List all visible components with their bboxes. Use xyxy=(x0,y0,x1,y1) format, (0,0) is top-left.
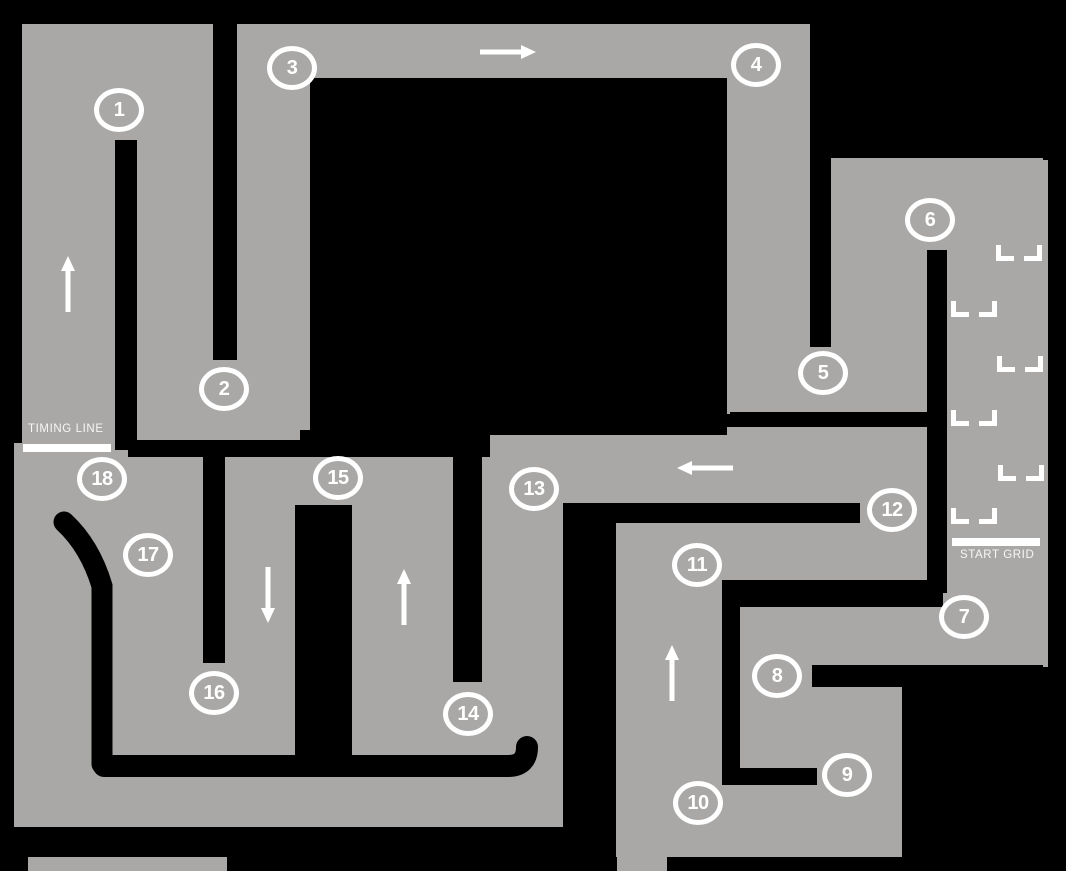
corner-marker-18: 18 xyxy=(77,457,127,501)
track-map: TIMING LINE START GRID 12345678910111213… xyxy=(0,0,1066,871)
grid-slot-3 xyxy=(997,356,1043,372)
corner-marker-1: 1 xyxy=(94,88,144,132)
corner-marker-13: 13 xyxy=(509,467,559,511)
wall-turn4-right xyxy=(810,55,831,347)
wall-turn15 xyxy=(295,505,352,760)
corner-marker-12: 12 xyxy=(867,488,917,532)
grid-slot-2 xyxy=(951,301,997,317)
corner-marker-9: 9 xyxy=(822,753,872,797)
corner-marker-7: 7 xyxy=(939,595,989,639)
wall-turn8-vertical xyxy=(722,587,740,783)
wall-turn1 xyxy=(115,140,137,450)
corner-marker-15: 15 xyxy=(313,456,363,500)
wall-turn7-south xyxy=(812,665,1043,687)
track-surface-top-left-block xyxy=(22,24,310,444)
track-surface-bottom-sliver-left xyxy=(28,857,227,871)
wall-turn12-north xyxy=(615,503,860,523)
start-grid-bar xyxy=(952,538,1040,546)
corner-marker-2: 2 xyxy=(199,367,249,411)
infield-block-central xyxy=(310,78,727,435)
wall-turn9 xyxy=(722,768,817,785)
corner-marker-3: 3 xyxy=(267,46,317,90)
corner-marker-17: 17 xyxy=(123,533,173,577)
wall-turn14 xyxy=(453,430,482,682)
direction-arrow-right xyxy=(479,44,537,60)
corner-marker-10: 10 xyxy=(673,781,723,825)
timing-line-bar xyxy=(23,444,111,452)
direction-arrow-up xyxy=(664,644,680,702)
corner-marker-16: 16 xyxy=(189,671,239,715)
corner-marker-14: 14 xyxy=(443,692,493,736)
wall-west-horizontal xyxy=(128,440,330,457)
direction-arrow-left xyxy=(676,460,734,476)
grid-slot-1 xyxy=(996,245,1042,261)
timing-line-label: TIMING LINE xyxy=(28,423,104,435)
wall-bottom-band xyxy=(28,827,563,857)
corner-marker-4: 4 xyxy=(731,43,781,87)
wall-turn16 xyxy=(203,455,225,663)
grid-slot-6 xyxy=(951,508,997,524)
corner-marker-11: 11 xyxy=(672,543,722,587)
corner-marker-6: 6 xyxy=(905,198,955,242)
grid-slot-4 xyxy=(951,410,997,426)
direction-arrow-up xyxy=(60,255,76,313)
divider-block-turn13 xyxy=(563,503,616,858)
wall-turn11-south xyxy=(722,580,931,607)
direction-arrow-up xyxy=(396,568,412,626)
grid-slot-5 xyxy=(998,465,1044,481)
wall-turn2 xyxy=(213,24,237,360)
corner-marker-5: 5 xyxy=(798,351,848,395)
direction-arrow-down xyxy=(260,566,276,624)
start-grid-label: START GRID xyxy=(960,549,1034,561)
wall-turn5-south xyxy=(730,412,931,427)
track-surface-bottom-sliver-right xyxy=(617,857,667,871)
corner-marker-8: 8 xyxy=(752,654,802,698)
